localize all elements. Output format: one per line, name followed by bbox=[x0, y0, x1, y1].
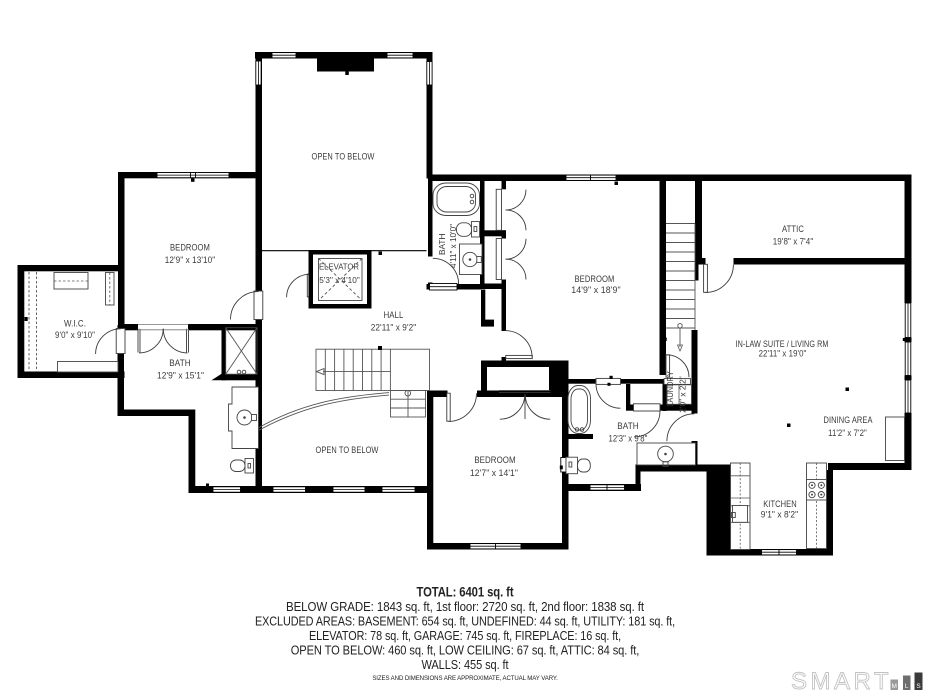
svg-text:14'9" x 18'9": 14'9" x 18'9" bbox=[571, 284, 621, 295]
svg-text:11'2" x 7'2": 11'2" x 7'2" bbox=[828, 427, 867, 438]
svg-text:5'3" x 4'10": 5'3" x 4'10" bbox=[319, 275, 360, 285]
svg-text:HALL: HALL bbox=[384, 309, 404, 320]
svg-text:L: L bbox=[905, 683, 909, 690]
svg-text:BATH: BATH bbox=[617, 420, 639, 431]
svg-text:BATH: BATH bbox=[169, 357, 191, 368]
svg-text:ELEVATOR: 78 sq. ft, GARAGE: 7: ELEVATOR: 78 sq. ft, GARAGE: 745 sq. ft,… bbox=[309, 629, 621, 643]
svg-text:BATH: BATH bbox=[437, 234, 447, 256]
svg-text:9'1" x 8'2": 9'1" x 8'2" bbox=[761, 508, 798, 519]
svg-text:TOTAL: 6401 sq. ft: TOTAL: 6401 sq. ft bbox=[417, 584, 515, 599]
svg-text:12'7" x 14'1": 12'7" x 14'1" bbox=[470, 467, 518, 478]
svg-text:OPEN TO BELOW: 460 sq. ft, LOW: OPEN TO BELOW: 460 sq. ft, LOW CEILING: … bbox=[291, 643, 640, 657]
svg-text:DINING AREA: DINING AREA bbox=[824, 414, 874, 425]
svg-text:ELEVATOR: ELEVATOR bbox=[319, 262, 359, 272]
svg-text:12'9" x 15'1": 12'9" x 15'1" bbox=[157, 370, 204, 381]
svg-text:22'11" x 9'2": 22'11" x 9'2" bbox=[371, 321, 417, 332]
svg-text:19'8" x 7'4": 19'8" x 7'4" bbox=[773, 236, 814, 247]
svg-text:4'11" x 10'0": 4'11" x 10'0" bbox=[448, 224, 458, 268]
svg-text:M: M bbox=[891, 683, 896, 690]
svg-text:9'0" x 9'10": 9'0" x 9'10" bbox=[55, 329, 95, 340]
svg-text:EXCLUDED AREAS: BASEMENT: 654: EXCLUDED AREAS: BASEMENT: 654 sq. ft, UN… bbox=[255, 614, 675, 628]
svg-text:BEDROOM: BEDROOM bbox=[474, 454, 515, 465]
svg-text:SMART: SMART bbox=[791, 668, 892, 695]
svg-text:WALLS: 455 sq. ft: WALLS: 455 sq. ft bbox=[422, 658, 510, 672]
svg-text:22'11" x 19'0": 22'11" x 19'0" bbox=[759, 347, 807, 358]
svg-text:BEDROOM: BEDROOM bbox=[575, 273, 615, 284]
svg-text:12'3" x 9'8": 12'3" x 9'8" bbox=[609, 433, 648, 444]
svg-text:OPEN TO BELOW: OPEN TO BELOW bbox=[316, 444, 379, 455]
svg-text:S: S bbox=[916, 683, 921, 690]
svg-text:ATTIC: ATTIC bbox=[782, 223, 804, 234]
svg-text:2'0" x 2'2": 2'0" x 2'2" bbox=[678, 376, 688, 413]
svg-text:KITCHEN: KITCHEN bbox=[763, 498, 797, 509]
svg-text:W.I.C.: W.I.C. bbox=[64, 317, 86, 328]
svg-text:LAUNDRY: LAUNDRY bbox=[665, 371, 675, 407]
svg-text:OPEN TO BELOW: OPEN TO BELOW bbox=[312, 151, 375, 162]
svg-text:BEDROOM: BEDROOM bbox=[170, 241, 210, 252]
svg-text:SIZES AND DIMENSIONS ARE APPRO: SIZES AND DIMENSIONS ARE APPROXIMATE, AC… bbox=[372, 675, 558, 682]
svg-text:12'9" x 13'10": 12'9" x 13'10" bbox=[165, 254, 216, 265]
svg-text:BELOW GRADE: 1843 sq. ft, 1st: BELOW GRADE: 1843 sq. ft, 1st floor: 272… bbox=[286, 600, 645, 614]
